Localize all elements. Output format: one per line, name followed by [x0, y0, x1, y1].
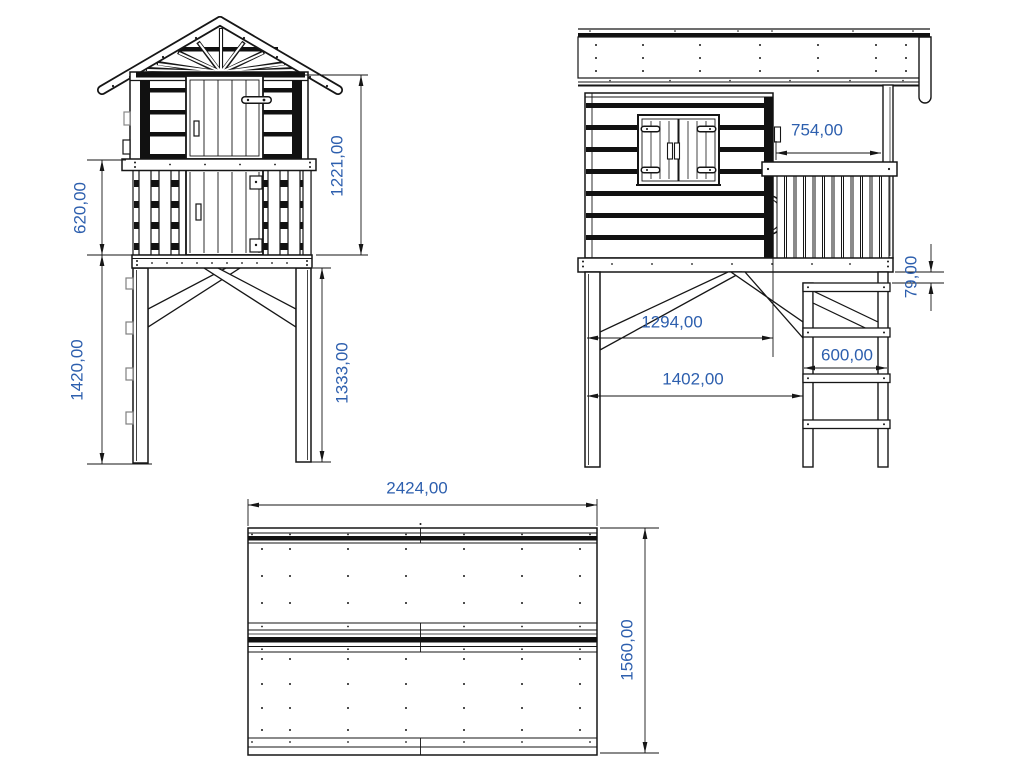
shutter-handle	[668, 143, 673, 159]
front-lower-level	[133, 170, 311, 255]
drawing-linework	[0, 0, 1024, 768]
front-right-leg	[296, 268, 311, 462]
front-left-leg	[133, 268, 148, 463]
front-door-lower	[186, 170, 263, 255]
ridge-cap-top	[248, 536, 597, 541]
side-view	[578, 29, 944, 467]
dim-label-2424: 2424,00	[386, 480, 447, 497]
dim-label-1560: 1560,00	[619, 619, 636, 680]
hinge-plate	[124, 112, 130, 125]
shutter-handle	[675, 143, 680, 159]
side-window	[636, 115, 721, 185]
plan-view	[248, 499, 659, 755]
dim-label-754: 754,00	[791, 122, 843, 139]
front-floor-band	[132, 255, 312, 268]
porch-rail-board	[762, 162, 897, 176]
dim-label-79: 79,00	[903, 256, 920, 299]
door-handle	[194, 121, 199, 136]
leg-brace	[204, 268, 296, 327]
dim-label-620: 620,00	[72, 182, 89, 234]
technical-drawing-page: 620,00 1420,00 1221,00 1333,00 754,00 79…	[0, 0, 1024, 768]
dim-label-1402: 1402,00	[662, 371, 723, 388]
dim-label-1333: 1333,00	[334, 342, 351, 403]
dim-label-1294: 1294,00	[641, 314, 702, 331]
side-floor-band	[578, 258, 893, 272]
door-latch	[245, 99, 268, 102]
leg-tabs	[126, 278, 133, 424]
side-left-leg	[585, 272, 600, 467]
porch-railing-slats	[777, 176, 889, 258]
leg-brace	[731, 272, 803, 338]
dim-label-600: 600,00	[821, 347, 873, 364]
ridge-band	[248, 637, 597, 643]
hinge-plate	[775, 127, 781, 142]
front-view	[87, 21, 368, 464]
dim-label-1420: 1420,00	[69, 339, 86, 400]
front-door	[186, 76, 268, 159]
deck-rail-board	[122, 159, 316, 171]
dim-label-1221: 1221,00	[329, 135, 346, 196]
hinge-plate	[123, 140, 130, 154]
side-roof	[578, 29, 931, 103]
bargeboard-end	[919, 37, 931, 103]
